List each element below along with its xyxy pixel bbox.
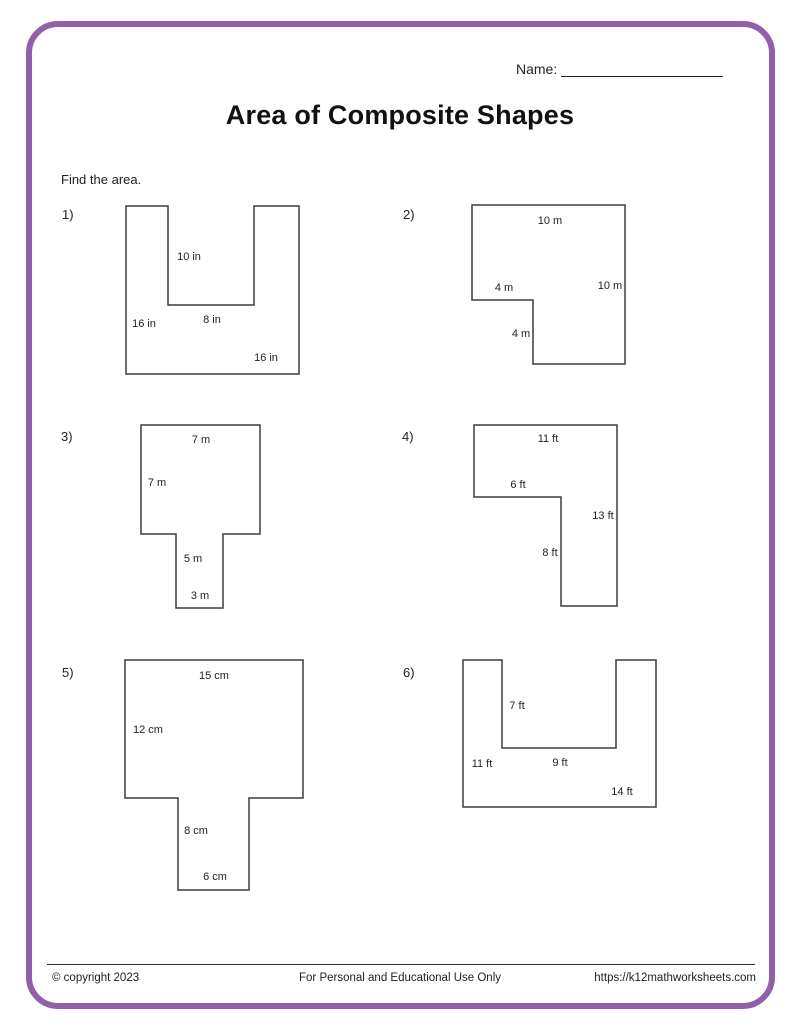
worksheet-page: Name: Area of Composite Shapes Find the … [0,0,800,1035]
problem-4-dim-inner-height: 8 ft [542,547,557,559]
problem-3-dim-left-side: 7 m [148,477,166,489]
problem-3-dim-stem-height: 5 m [184,553,202,565]
problem-2-number: 2) [403,207,415,222]
problem-5-dim-top: 15 cm [199,670,229,682]
problem-3-dim-top: 7 m [192,434,210,446]
name-label: Name: [516,61,557,77]
problem-5-dim-stem-height: 8 cm [184,825,208,837]
name-blank-line [561,61,723,77]
problem-5-shape [125,660,303,890]
problem-6-dim-left-side: 11 ft [472,758,493,770]
problem-2-dim-right-side: 10 m [598,280,622,292]
problem-1-dim-inner-height: 10 in [177,251,201,263]
problem-6-dim-notch-width: 9 ft [552,757,567,769]
problem-4-number: 4) [402,429,414,444]
footer-website-url: https://k12mathworksheets.com [594,972,756,984]
problem-5-dim-left-side: 12 cm [133,724,163,736]
problem-6-number: 6) [403,665,415,680]
problem-3-shape [141,425,260,608]
page-title: Area of Composite Shapes [0,100,800,131]
problem-4-dim-right-side: 13 ft [592,510,613,522]
instruction-text: Find the area. [61,172,141,187]
problem-4-dim-left-step: 6 ft [510,479,525,491]
problem-6-dim-inner-height: 7 ft [509,700,524,712]
footer-divider [47,964,755,965]
problem-2-dim-top: 10 m [538,215,562,227]
problem-2-dim-inner-height: 4 m [512,328,530,340]
problem-1-dim-left-side: 16 in [132,318,156,330]
problem-4-dim-top: 11 ft [538,433,559,445]
problem-1-shape [126,206,299,374]
problem-3-dim-stem-width: 3 m [191,590,209,602]
problem-1-dim-bottom: 16 in [254,352,278,364]
name-row: Name: [516,61,723,77]
problem-1-dim-notch-width: 8 in [203,314,221,326]
problem-6-shape [463,660,656,807]
problem-2-dim-left-step: 4 m [495,282,513,294]
problem-3-number: 3) [61,429,73,444]
problem-1-number: 1) [62,207,74,222]
problem-5-number: 5) [62,665,74,680]
problem-5-dim-stem-width: 6 cm [203,871,227,883]
problem-6-dim-bottom: 14 ft [611,786,632,798]
